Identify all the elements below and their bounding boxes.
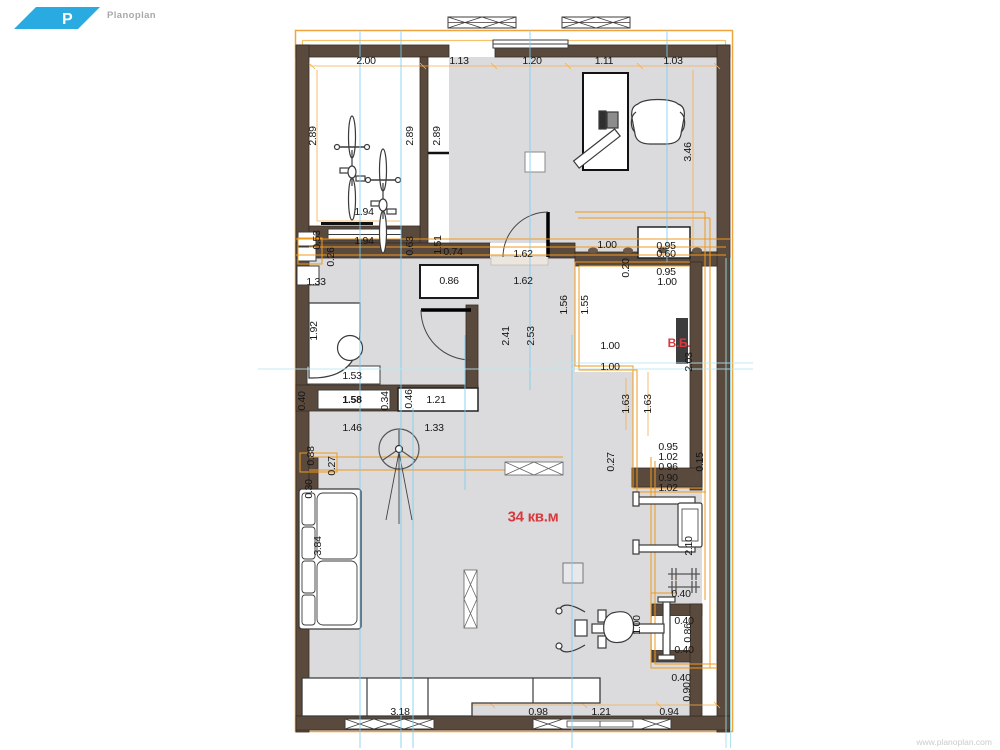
floorplan-canvas[interactable]: 2.001.131.201.111.032.892.892.893.461.94… (0, 0, 1000, 750)
floor-box (563, 563, 583, 583)
logo-letter: P (62, 11, 73, 28)
casement-window-icon (448, 17, 516, 28)
watermark: www.planoplan.com (916, 737, 992, 747)
wall-niche (298, 247, 316, 261)
logo-icon: P (0, 0, 220, 42)
floorplan-drawing (0, 0, 1000, 750)
dimension-box (420, 265, 478, 298)
beam-icon (505, 462, 563, 475)
casement-window-icon (562, 17, 630, 28)
duct-shaft (676, 318, 688, 364)
chair-icon (338, 336, 363, 361)
window-sill (321, 222, 373, 225)
monitor-icon (599, 111, 606, 129)
balcony-window-icon (328, 229, 402, 240)
logo-text: Planoplan (107, 10, 156, 21)
threshold (491, 256, 548, 265)
wall-inset (318, 390, 390, 409)
sofa-icon (299, 489, 361, 629)
wall-niche (297, 266, 319, 285)
bike-seat (604, 612, 634, 643)
bottom-window-icon (533, 719, 671, 729)
beam-icon (464, 570, 477, 628)
planoplan-logo[interactable]: P Planoplan (0, 0, 220, 42)
office-chair-icon (631, 100, 684, 145)
doorway-box (398, 388, 478, 411)
bottom-window-icon (345, 719, 434, 729)
floor-box (525, 152, 545, 172)
monitor-screen (607, 112, 618, 128)
